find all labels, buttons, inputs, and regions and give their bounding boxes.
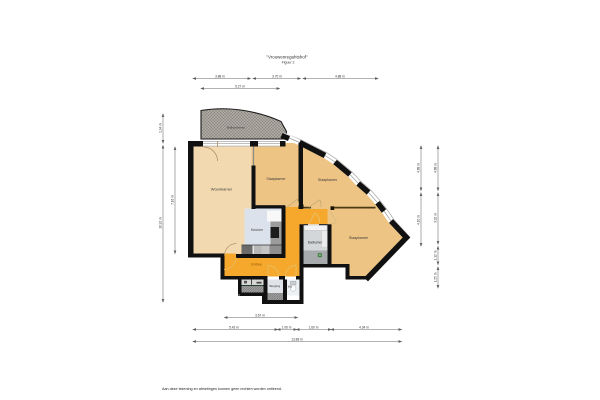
svg-text:Wc: Wc xyxy=(288,284,293,288)
svg-text:4.34 m: 4.34 m xyxy=(359,325,369,329)
svg-text:Balkon/terras: Balkon/terras xyxy=(227,126,245,130)
svg-text:5.43 m: 5.43 m xyxy=(229,325,239,329)
svg-text:Keuken: Keuken xyxy=(251,228,263,232)
svg-text:1.60 m: 1.60 m xyxy=(309,325,319,329)
svg-text:3.70 m: 3.70 m xyxy=(272,74,282,78)
svg-text:1.25 m: 1.25 m xyxy=(434,272,438,282)
svg-text:Badkamer: Badkamer xyxy=(308,241,323,245)
svg-text:Berging: Berging xyxy=(269,284,280,288)
svg-text:7.16 m: 7.16 m xyxy=(171,195,175,205)
svg-text:Entree: Entree xyxy=(251,263,262,267)
svg-text:4.88 m: 4.88 m xyxy=(335,74,345,78)
svg-text:Slaapkamer: Slaapkamer xyxy=(349,236,369,240)
svg-text:4.88 m: 4.88 m xyxy=(434,163,438,173)
svg-text:1.06 m: 1.06 m xyxy=(282,325,292,329)
svg-text:Slaapkamer: Slaapkamer xyxy=(266,177,286,181)
svg-text:4.10 m: 4.10 m xyxy=(417,215,421,225)
svg-text:13.88 m: 13.88 m xyxy=(291,337,303,341)
svg-text:Aan deze tekening en afmetinge: Aan deze tekening en afmetingen kunnen g… xyxy=(162,387,282,391)
svg-text:3.02 m: 3.02 m xyxy=(434,213,438,223)
svg-text:3.88 m: 3.88 m xyxy=(215,74,225,78)
svg-text:3.67 m: 3.67 m xyxy=(255,313,265,317)
svg-text:1.12 m: 1.12 m xyxy=(434,250,438,260)
svg-text:"Vrouwenregahtshof": "Vrouwenregahtshof" xyxy=(266,55,307,60)
svg-text:5.27 m: 5.27 m xyxy=(235,84,245,88)
svg-text:1.94 m: 1.94 m xyxy=(159,123,163,133)
svg-text:Woonkamer: Woonkamer xyxy=(211,186,233,191)
svg-text:Figuur 2: Figuur 2 xyxy=(282,61,295,65)
svg-text:4.88 m: 4.88 m xyxy=(417,163,421,173)
svg-text:10.92 m: 10.92 m xyxy=(159,217,163,229)
svg-text:Slaapkamer: Slaapkamer xyxy=(318,178,338,182)
